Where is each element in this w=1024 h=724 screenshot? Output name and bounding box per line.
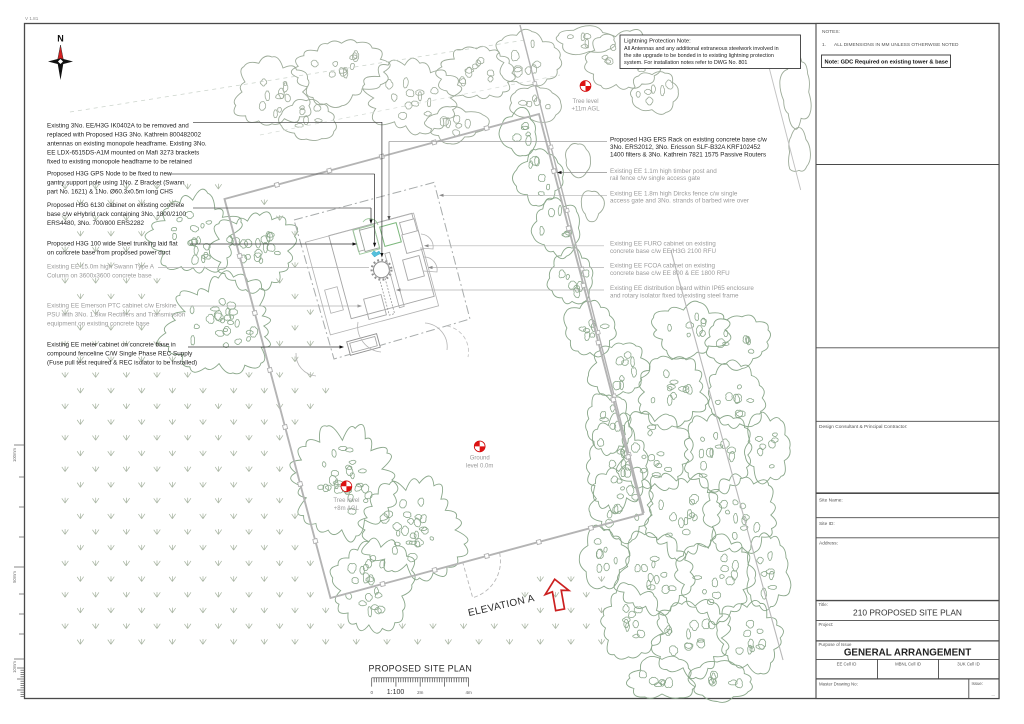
svg-text:—: — bbox=[992, 694, 996, 698]
svg-text:10mm: 10mm bbox=[12, 661, 17, 673]
svg-text:compound fenceline C/W Single: compound fenceline C/W Single Phase REC … bbox=[47, 351, 193, 358]
svg-text:(Fuse pull test required & REC: (Fuse pull test required & REC isolator … bbox=[47, 360, 197, 367]
svg-text:Title:: Title: bbox=[819, 602, 828, 607]
svg-text:+11m AGL: +11m AGL bbox=[571, 107, 600, 113]
svg-text:50mm: 50mm bbox=[12, 571, 17, 583]
svg-text:Site Name:: Site Name: bbox=[819, 498, 843, 504]
svg-text:antennas on existing monopole: antennas on existing monopole headframe.… bbox=[47, 141, 207, 148]
svg-text:3UK Cell ID: 3UK Cell ID bbox=[957, 661, 979, 666]
svg-text:gantry support pole using 1No.: gantry support pole using 1No. Z Bracket… bbox=[47, 180, 185, 187]
svg-text:Proposed H3G 100 wide Steel tr: Proposed H3G 100 wide Steel trunking lai… bbox=[47, 241, 178, 248]
svg-text:EE Cell ID: EE Cell ID bbox=[837, 661, 857, 666]
svg-text:2m: 2m bbox=[417, 690, 424, 695]
svg-text:Project:: Project: bbox=[819, 622, 834, 627]
svg-text:Existing EE FURO cabinet on ex: Existing EE FURO cabinet on existing bbox=[610, 241, 716, 248]
svg-text:and rotary isolator fixed to e: and rotary isolator fixed to existing st… bbox=[610, 292, 739, 299]
svg-text:V 1.81: V 1.81 bbox=[25, 16, 39, 21]
svg-text:Ground: Ground bbox=[470, 456, 490, 462]
svg-text:Column on 3600x3600 concrete b: Column on 3600x3600 concrete base bbox=[47, 273, 152, 280]
svg-text:access gate and 3No. strands o: access gate and 3No. strands of barbed w… bbox=[610, 198, 749, 205]
svg-text:Design Consultant & Principal: Design Consultant & Principal Contractor… bbox=[819, 424, 908, 430]
svg-text:Lightning Protection Note:: Lightning Protection Note: bbox=[624, 38, 691, 44]
svg-text:the site upgrade to be bonded: the site upgrade to be bonded in to exis… bbox=[624, 53, 774, 59]
svg-text:4m: 4m bbox=[465, 690, 472, 695]
svg-text:Tree level: Tree level bbox=[572, 99, 598, 105]
svg-text:equipment on existing concrete: equipment on existing concrete base bbox=[47, 321, 150, 328]
svg-text:N: N bbox=[57, 34, 64, 44]
svg-text:Purpose of Issue: Purpose of Issue bbox=[819, 642, 853, 647]
svg-text:Existing 3No. EE/H3G IK0402A t: Existing 3No. EE/H3G IK0402A to be remov… bbox=[47, 123, 189, 130]
svg-text:Tree level: Tree level bbox=[333, 498, 359, 504]
svg-text:+8m AGL: +8m AGL bbox=[334, 506, 360, 512]
svg-text:level 0.0m: level 0.0m bbox=[466, 463, 493, 469]
svg-text:Site ID:: Site ID: bbox=[819, 521, 835, 527]
svg-text:concrete base c/w EE 800 & EE: concrete base c/w EE 800 & EE 1800 RFU bbox=[610, 270, 730, 277]
svg-text:1.: 1. bbox=[822, 42, 826, 48]
svg-text:PSU with 3No. 1.8kw Rectifiers: PSU with 3No. 1.8kw Rectifiers and Trans… bbox=[47, 312, 186, 319]
svg-text:base c/w eHybrid rack containi: base c/w eHybrid rack containing 3No. 18… bbox=[47, 211, 186, 218]
svg-text:rail fence c/w single access g: rail fence c/w single access gate bbox=[610, 175, 701, 182]
svg-text:Proposed H3G 6130 cabinet on e: Proposed H3G 6130 cabinet on existing co… bbox=[47, 202, 185, 209]
svg-text:Existing EE distribution board: Existing EE distribution board within IP… bbox=[610, 285, 754, 292]
svg-text:Existing EE Emerson PTC cabine: Existing EE Emerson PTC cabinet c/w Ersk… bbox=[47, 303, 177, 310]
svg-text:fixed to existing monopole hea: fixed to existing monopole headframe to … bbox=[47, 159, 192, 166]
svg-text:Proposed H3G ERS Rack on exist: Proposed H3G ERS Rack on existing concre… bbox=[610, 137, 767, 144]
svg-text:EE LDX-6515DS-A1M mounted on M: EE LDX-6515DS-A1M mounted on Mafi 3273 b… bbox=[47, 150, 199, 157]
svg-text:All Antennas and any additiona: All Antennas and any additional extraneo… bbox=[624, 46, 779, 52]
svg-text:ALL DIMENSIONS IN MM UNLESS OT: ALL DIMENSIONS IN MM UNLESS OTHERWISE NO… bbox=[834, 42, 959, 48]
svg-text:Existing EE 1.8m high Dircks f: Existing EE 1.8m high Dircks fence c/w s… bbox=[610, 191, 738, 198]
svg-text:ELEVATION A: ELEVATION A bbox=[467, 593, 536, 619]
svg-text:Master Drawing No:: Master Drawing No: bbox=[819, 682, 858, 687]
svg-text:part No. 1621) & 1No. Ø60.3x0.: part No. 1621) & 1No. Ø60.3x0.5m long CH… bbox=[47, 189, 173, 196]
svg-text:GENERAL ARRANGEMENT: GENERAL ARRANGEMENT bbox=[844, 647, 971, 658]
svg-text:replaced with Proposed H3G 3No: replaced with Proposed H3G 3No. Kathrein… bbox=[47, 132, 202, 139]
svg-text:system. For installation notes: system. For installation notes refer to … bbox=[624, 60, 747, 66]
svg-text:0: 0 bbox=[370, 690, 373, 695]
svg-text:Note: GDC Required on existing: Note: GDC Required on existing tower & b… bbox=[825, 60, 949, 66]
svg-text:Issue:: Issue: bbox=[972, 681, 983, 686]
svg-text:Existing EE 15.0m high Swann T: Existing EE 15.0m high Swann Type A bbox=[47, 264, 155, 271]
svg-text:Address:: Address: bbox=[819, 541, 838, 547]
svg-text:ERS4480, 3No. 700/800 ERS2282: ERS4480, 3No. 700/800 ERS2282 bbox=[47, 220, 144, 227]
svg-text:Existing EE 1.1m high timber p: Existing EE 1.1m high timber post and bbox=[610, 168, 717, 175]
svg-text:100mm: 100mm bbox=[12, 448, 17, 462]
svg-text:MBNL Cell ID: MBNL Cell ID bbox=[895, 661, 921, 666]
svg-text:Proposed H3G GPS Node to be fi: Proposed H3G GPS Node to be fixed to new bbox=[47, 171, 172, 178]
svg-text:concrete base c/w EE/H3G 2100: concrete base c/w EE/H3G 2100 RFU bbox=[610, 248, 716, 255]
svg-text:1400 filters & 3No. Kathrein 7: 1400 filters & 3No. Kathrein 7821 1575 P… bbox=[610, 152, 766, 159]
svg-text:Existing EE meter cabinet on c: Existing EE meter cabinet on concrete ba… bbox=[47, 342, 176, 349]
svg-text:PROPOSED SITE PLAN: PROPOSED SITE PLAN bbox=[369, 664, 473, 674]
svg-text:3No. ERS2012, 3No. Ericsson SL: 3No. ERS2012, 3No. Ericsson SLF-B32A KRF… bbox=[610, 144, 761, 151]
svg-text:210 PROPOSED SITE PLAN: 210 PROPOSED SITE PLAN bbox=[853, 608, 962, 618]
svg-text:on concrete base from proposed: on concrete base from proposed power duc… bbox=[47, 250, 170, 257]
svg-text:1:100: 1:100 bbox=[387, 689, 405, 696]
svg-text:NOTES:: NOTES: bbox=[822, 29, 840, 35]
svg-text:Existing EE FCOA cabinet on ex: Existing EE FCOA cabinet on existing bbox=[610, 263, 715, 270]
